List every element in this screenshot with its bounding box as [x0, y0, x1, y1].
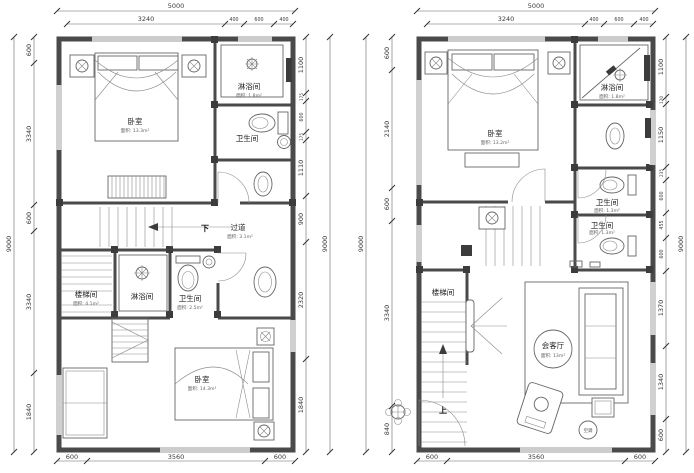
dim-label: 600: [614, 17, 623, 23]
floorplan-canvas: 卧室 面积: 13.3m² 淋浴间 面积: 1.8m² 卫生间: [0, 0, 694, 473]
dim-label: 400: [279, 17, 288, 23]
left-bedroom-bottom-area: 面积: 14.3m²: [188, 385, 217, 392]
dim-label: 600: [657, 429, 665, 441]
left-nightstand-bottom: [254, 422, 274, 440]
right-nightstand-right: [548, 52, 570, 74]
left-floor-drain: [257, 328, 274, 345]
right-living-area: 面积: 13m²: [541, 352, 566, 359]
dim-label: 175: [299, 133, 304, 141]
dim-label: 1100: [657, 59, 665, 76]
left-corridor-stairs: [100, 207, 232, 247]
left-corridor-area: 面积: 3.1m²: [227, 233, 253, 240]
right-stairwell-label: 楼梯间: [432, 287, 455, 297]
dim-label: 3340: [383, 305, 391, 322]
left-bath-mid-area: 面积: 2.5m²: [177, 304, 203, 311]
dim-label: 3560: [168, 453, 185, 461]
dim-label: 3560: [528, 453, 545, 461]
dim-label: 600: [634, 453, 646, 461]
dim-label: 1110: [297, 160, 305, 177]
left-bath-mid-label: 卫生间: [179, 293, 202, 303]
dim-label: 840: [383, 423, 391, 435]
left-shower-top-area: 面积: 1.8m²: [236, 92, 262, 99]
left-bath-top-label: 卫生间: [236, 133, 259, 143]
right-nightstand-left: [425, 52, 447, 74]
left-bedroom-bottom-label: 卧室: [195, 374, 210, 384]
dim-label: 1370: [657, 300, 665, 317]
dim-label: 400: [589, 17, 598, 23]
right-living-label: 会客厅: [542, 340, 565, 350]
left-shower-top-label: 淋浴间: [238, 81, 261, 91]
dim-label: 600: [25, 44, 33, 56]
left-lower-stairs: [112, 318, 148, 362]
right-bath-lower-area: 面积: 1.3m²: [589, 229, 615, 236]
right-bath-upper-area: 面积: 1.3m²: [594, 207, 620, 214]
dim-label: 3340: [25, 294, 33, 311]
dim-label: 600: [66, 453, 78, 461]
dim-label: 175: [299, 93, 304, 101]
left-shower-mid-label: 淋浴间: [131, 291, 154, 301]
left-nightstand-right: [182, 55, 206, 77]
right-pivot-door: [466, 298, 507, 354]
left-tub: [254, 267, 276, 297]
dim-label: 120: [659, 96, 664, 104]
right-bedroom-door: [512, 169, 545, 202]
dim-label: 9000: [5, 236, 13, 253]
right-armchair: [516, 382, 564, 435]
right-landing: [461, 206, 540, 266]
left-stairwell-area: 面积: 4.1m²: [73, 300, 99, 307]
right-plan: 卧室 面积: 13.2m² 淋浴间 面积: 1.8m² 卫生间 面积: 1.3m…: [416, 36, 657, 454]
right-bath-upper-label: 卫生间: [596, 197, 619, 207]
left-nightstand-left: [70, 55, 94, 77]
dim-label: 600: [25, 212, 33, 224]
right-ac-label: 空调: [584, 427, 593, 434]
dim-label: 9000: [321, 236, 329, 253]
dim-label: 1840: [25, 404, 33, 421]
dim-label: 600: [659, 191, 665, 200]
dim-label: 2140: [383, 121, 391, 138]
left-down-label: 下: [201, 224, 209, 233]
left-bath-mid: [176, 253, 246, 291]
floorplan-page: 卧室 面积: 13.3m² 淋浴间 面积: 1.8m² 卫生间: [0, 0, 694, 473]
dim-label: 5000: [528, 2, 545, 10]
right-basin: [606, 118, 651, 149]
left-shower-mid: [119, 255, 167, 311]
dim-label: 235: [659, 169, 664, 177]
right-bedroom-area: 面积: 13.2m²: [481, 139, 510, 146]
dim-label: 600: [274, 453, 286, 461]
right-shower-label: 淋浴间: [601, 82, 624, 92]
dim-label: 3240: [498, 15, 515, 23]
left-subroom: [218, 172, 272, 203]
dim-label: 600: [383, 198, 391, 210]
right-living-room: [516, 282, 628, 439]
dim-label: 1340: [657, 374, 665, 391]
dim-label: 1100: [297, 57, 305, 74]
dim-label: 9000: [357, 236, 365, 253]
dim-label: 600: [299, 112, 305, 121]
right-stairwell: [421, 302, 467, 442]
left-plan: 卧室 面积: 13.3m² 淋浴间 面积: 1.8m² 卫生间: [56, 36, 297, 454]
left-stairwell-label: 楼梯间: [75, 289, 98, 299]
dim-label: 600: [383, 47, 391, 59]
dim-label: 3240: [138, 15, 155, 23]
left-corridor-label: 过道: [231, 222, 246, 232]
dim-label: 900: [297, 213, 305, 225]
left-bedroom-top-label: 卧室: [128, 116, 143, 126]
dim-label: 3340: [25, 126, 33, 143]
plant-icon: [386, 400, 411, 425]
right-bed: [448, 50, 538, 167]
right-bedroom-label: 卧室: [488, 128, 503, 138]
left-bed-top: [95, 53, 178, 141]
right-bath-upper: [578, 170, 636, 198]
left-wardrobe: [63, 368, 107, 438]
left-bath-top: [249, 112, 291, 149]
dim-label: 600: [254, 17, 263, 23]
dim-label: 5000: [168, 2, 185, 10]
dim-label: 600: [659, 249, 665, 258]
dim-label: 455: [659, 220, 665, 229]
dim-label: 400: [639, 17, 648, 23]
right-shower-area: 面积: 1.8m²: [599, 93, 625, 100]
dim-label: 9000: [677, 236, 685, 253]
right-bath-lower-label: 卫生间: [591, 220, 614, 230]
dim-label: 2320: [297, 292, 305, 309]
left-bedroom-top-area: 面积: 13.3m²: [121, 127, 150, 134]
dim-label: 1150: [657, 127, 665, 144]
left-bed-bottom: [175, 348, 273, 420]
left-radiator: [108, 176, 166, 198]
dim-label: 600: [426, 453, 438, 461]
dim-label: 1840: [297, 397, 305, 414]
dim-label: 400: [229, 17, 238, 23]
